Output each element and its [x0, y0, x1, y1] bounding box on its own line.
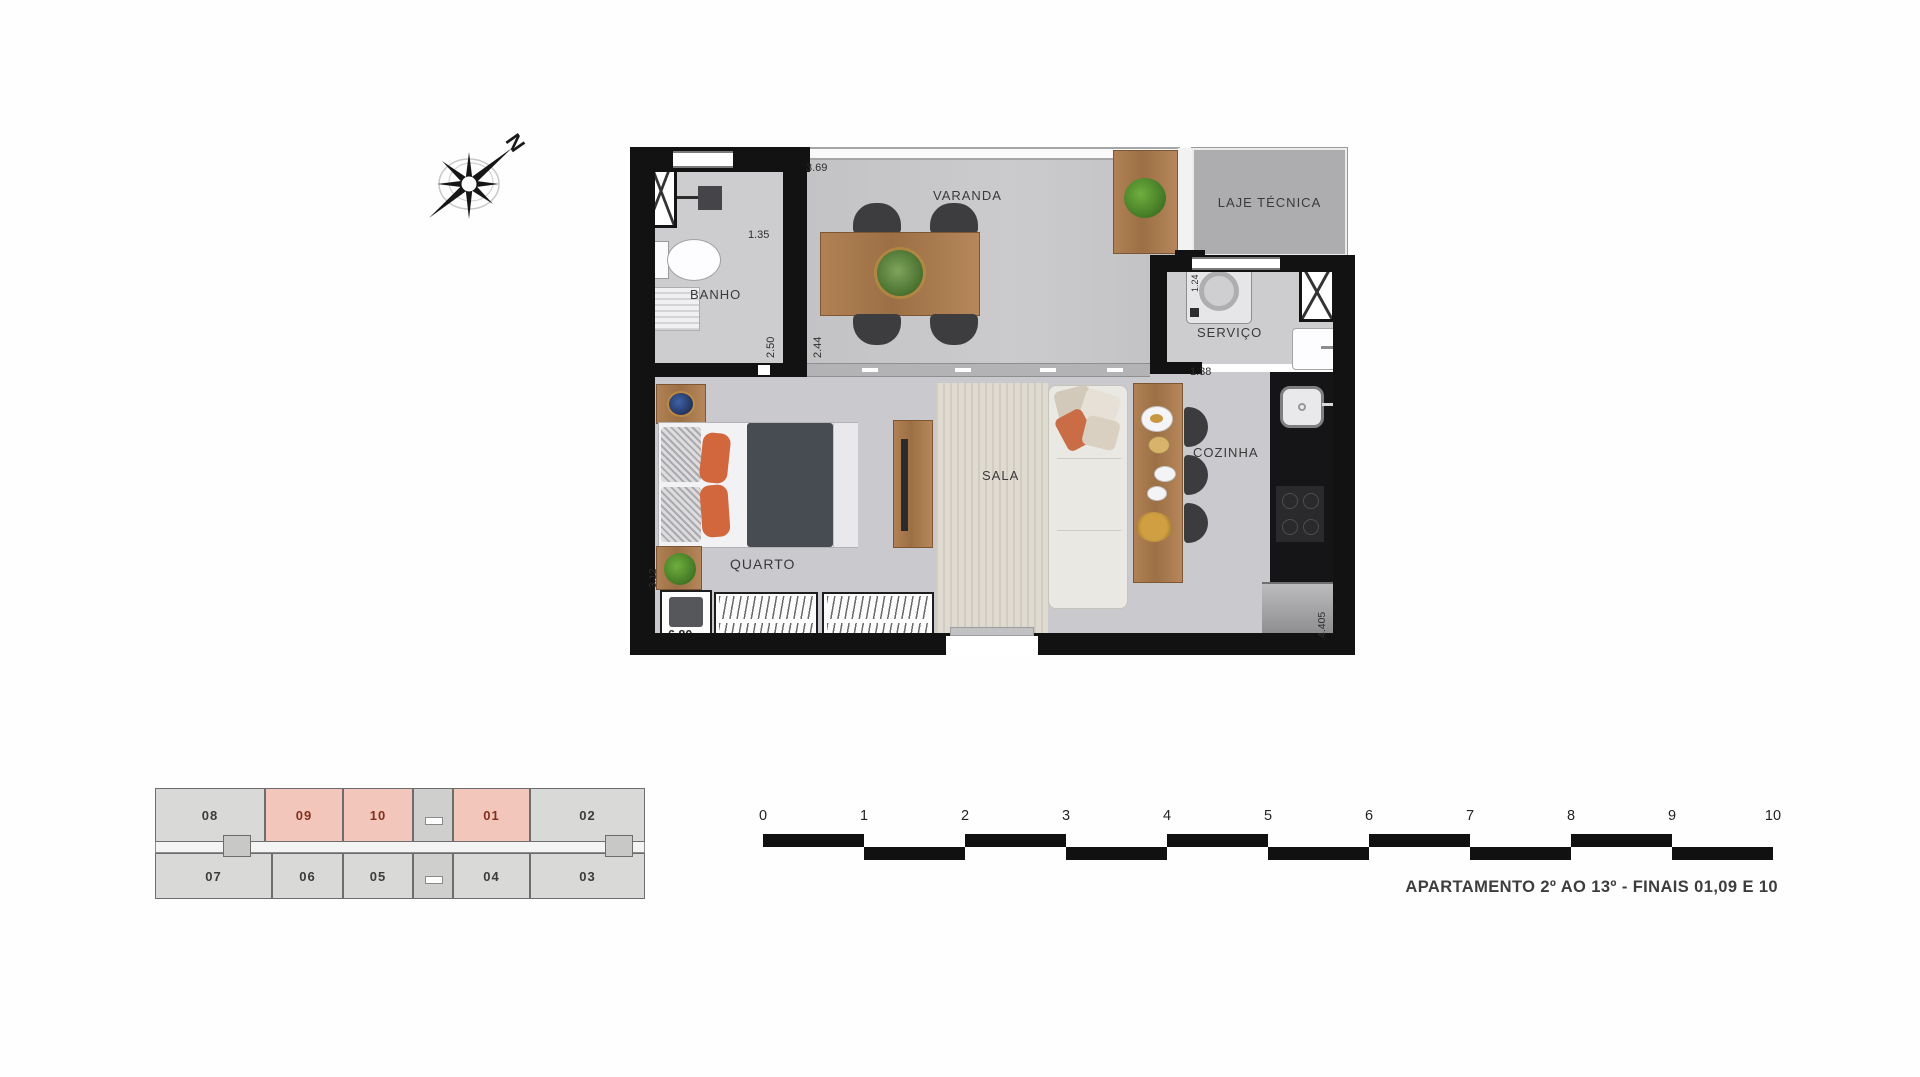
- keyplan-unit-01: 01: [453, 788, 530, 842]
- tv-icon: [901, 439, 908, 531]
- bed: [658, 422, 858, 548]
- dim-varanda-width: 3.69: [806, 162, 827, 174]
- scale-tick: 0: [759, 808, 767, 824]
- wall-segment: [1150, 255, 1167, 372]
- scale-tick: 2: [961, 808, 969, 824]
- bed-blanket: [747, 423, 833, 547]
- scale-bar: 0 1 2 3 4 5 6 7 8 9 10: [763, 808, 1775, 862]
- scale-segment: [965, 834, 1066, 847]
- sala-rug: [936, 383, 1048, 635]
- scale-tick: 6: [1365, 808, 1373, 824]
- scale-tick: 1: [860, 808, 868, 824]
- scale-tick: 7: [1466, 808, 1474, 824]
- floor-plan: LAJE TÉCNICA: [0, 0, 1920, 760]
- plant-icon: [664, 553, 696, 585]
- bed-throw: [833, 423, 858, 547]
- scale-tick: 3: [1062, 808, 1070, 824]
- laundry-tank-icon: [1292, 328, 1336, 370]
- small-plate-icon: [1154, 466, 1176, 482]
- shower-icon: [698, 186, 722, 210]
- keyplan-unit-06: 06: [272, 853, 343, 899]
- keyplan-elevator: [605, 835, 633, 857]
- scale-tick: 8: [1567, 808, 1575, 824]
- bed-cushion-orange: [699, 484, 731, 538]
- keyplan-unit-08: 08: [155, 788, 265, 842]
- key-plan: 08 09 10 01 02 07 06 05 04 03: [150, 786, 650, 904]
- scale-segment: [763, 834, 864, 847]
- servico-label: SERVIÇO: [1197, 325, 1262, 340]
- dim-varanda-depth: 2.44: [812, 337, 824, 358]
- wall-segment: [783, 147, 807, 377]
- nightstand: [656, 384, 706, 424]
- scale-segment: [1571, 834, 1672, 847]
- plan-caption: APARTAMENTO 2º AO 13º - FINAIS 01,09 E 1…: [1405, 878, 1778, 897]
- plate-icon: [1141, 406, 1173, 432]
- dim-quarto-depth: 3.12: [648, 569, 659, 588]
- washing-machine-icon: [1186, 264, 1252, 324]
- keyplan-core: [413, 788, 453, 842]
- window: [1192, 257, 1280, 270]
- small-plate-icon: [1147, 486, 1167, 501]
- sliding-door: [807, 363, 1150, 377]
- keyplan-unit-03: 03: [530, 853, 645, 899]
- keyplan-core: [413, 853, 453, 899]
- floorplan-page: N LAJE TÉCNICA: [0, 0, 1920, 1077]
- scale-tick: 10: [1765, 808, 1781, 824]
- scale-segment: [1672, 847, 1773, 860]
- scale-tick: 9: [1668, 808, 1676, 824]
- window: [673, 151, 733, 168]
- dim-banho-width: 1.35: [748, 229, 769, 241]
- dim-servico-width: 1.38: [1190, 366, 1211, 378]
- varanda-label: VARANDA: [933, 188, 1002, 203]
- scale-segment: [1167, 834, 1268, 847]
- fruit-bowl-icon: [1136, 512, 1172, 542]
- scale-segment: [864, 847, 965, 860]
- keyplan-elevator: [223, 835, 251, 857]
- keyplan-unit-04: 04: [453, 853, 530, 899]
- scale-tick: 4: [1163, 808, 1171, 824]
- wall-segment: [1333, 255, 1355, 655]
- bed-pillow: [661, 487, 701, 542]
- keyplan-unit-05: 05: [343, 853, 413, 899]
- entry-door-gap: [946, 636, 1038, 655]
- toilet-icon: [667, 239, 721, 281]
- scale-tick: 5: [1264, 808, 1272, 824]
- bed-pillow: [661, 427, 701, 482]
- dresser-item: [669, 597, 703, 627]
- scale-segment: [1268, 847, 1369, 860]
- cozinha-label: COZINHA: [1193, 445, 1259, 460]
- keyplan-unit-07: 07: [155, 853, 272, 899]
- dim-servico-machine: 1.24: [1190, 274, 1200, 292]
- kitchen-sink-icon: [1280, 386, 1324, 428]
- bed-cushion-orange: [698, 432, 731, 485]
- plant-shelf: [656, 546, 702, 590]
- quarto-label: QUARTO: [730, 556, 795, 572]
- sala-label: SALA: [982, 468, 1019, 483]
- keyplan-unit-10: 10: [343, 788, 413, 842]
- scale-segment: [1066, 847, 1167, 860]
- cooktop-icon: [1276, 486, 1324, 542]
- entry-door-leaf: [950, 627, 1034, 636]
- shower-pipe: [677, 196, 700, 199]
- scale-segment: [1369, 834, 1470, 847]
- scale-segment: [1470, 847, 1571, 860]
- wall-white-strip: [1178, 148, 1192, 254]
- banho-label: BANHO: [690, 287, 741, 302]
- keyplan-unit-02: 02: [530, 788, 645, 842]
- teapot-icon: [1148, 436, 1170, 454]
- laje-tecnica-area: LAJE TÉCNICA: [1192, 148, 1347, 256]
- dim-cozinha-depth: 4.405: [1316, 612, 1328, 638]
- laje-tecnica-label: LAJE TÉCNICA: [1218, 195, 1322, 210]
- tv-console: [893, 420, 933, 548]
- dim-banho-depth: 2.50: [765, 337, 777, 358]
- keyplan-unit-09: 09: [265, 788, 343, 842]
- table-centerpiece-plant-icon: [877, 250, 923, 296]
- planter-plant-icon: [1124, 178, 1166, 218]
- door-gap: [758, 365, 770, 375]
